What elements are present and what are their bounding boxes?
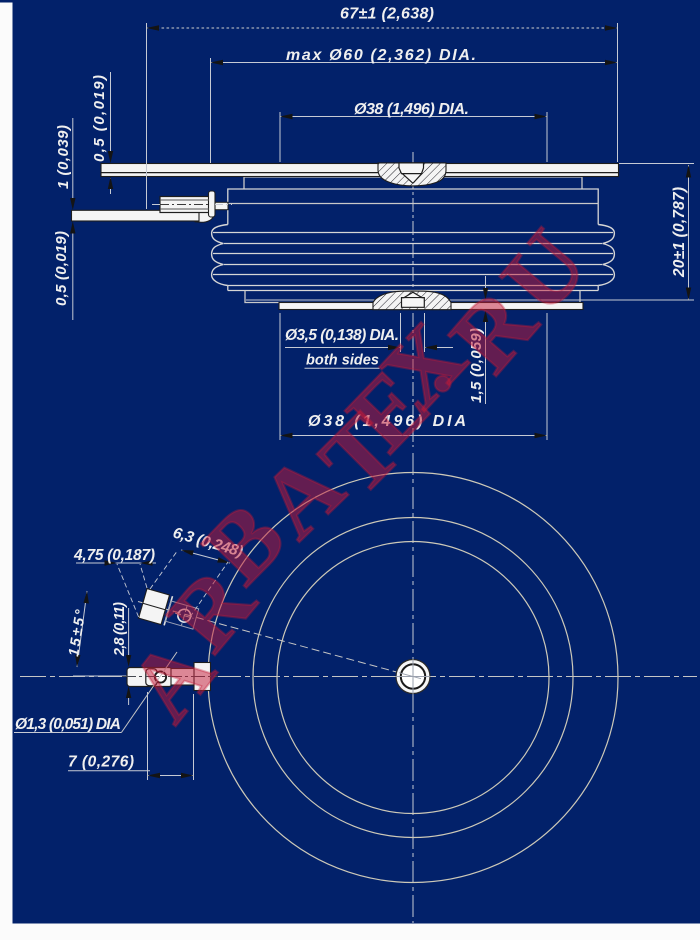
svg-text:2,8 (0,11): 2,8 (0,11) xyxy=(112,602,128,657)
svg-text:20±1 (0,787): 20±1 (0,787) xyxy=(671,187,688,278)
svg-text:4,75 (0,187): 4,75 (0,187) xyxy=(73,547,155,564)
svg-text:1 (0,039): 1 (0,039) xyxy=(55,125,72,189)
svg-text:67±1 (2,638): 67±1 (2,638) xyxy=(340,6,434,23)
svg-text:Ø38 (1,496) DIA.: Ø38 (1,496) DIA. xyxy=(354,101,469,118)
svg-text:0,5 (0,019): 0,5 (0,019) xyxy=(91,75,108,162)
svg-text:max Ø60 (2,362) DIA.: max Ø60 (2,362) DIA. xyxy=(286,47,476,64)
svg-text:0,5 (0,019): 0,5 (0,019) xyxy=(53,231,70,306)
svg-text:7 (0,276): 7 (0,276) xyxy=(68,754,134,771)
svg-text:Ø1,3 (0,051) DIA: Ø1,3 (0,051) DIA xyxy=(15,716,121,733)
